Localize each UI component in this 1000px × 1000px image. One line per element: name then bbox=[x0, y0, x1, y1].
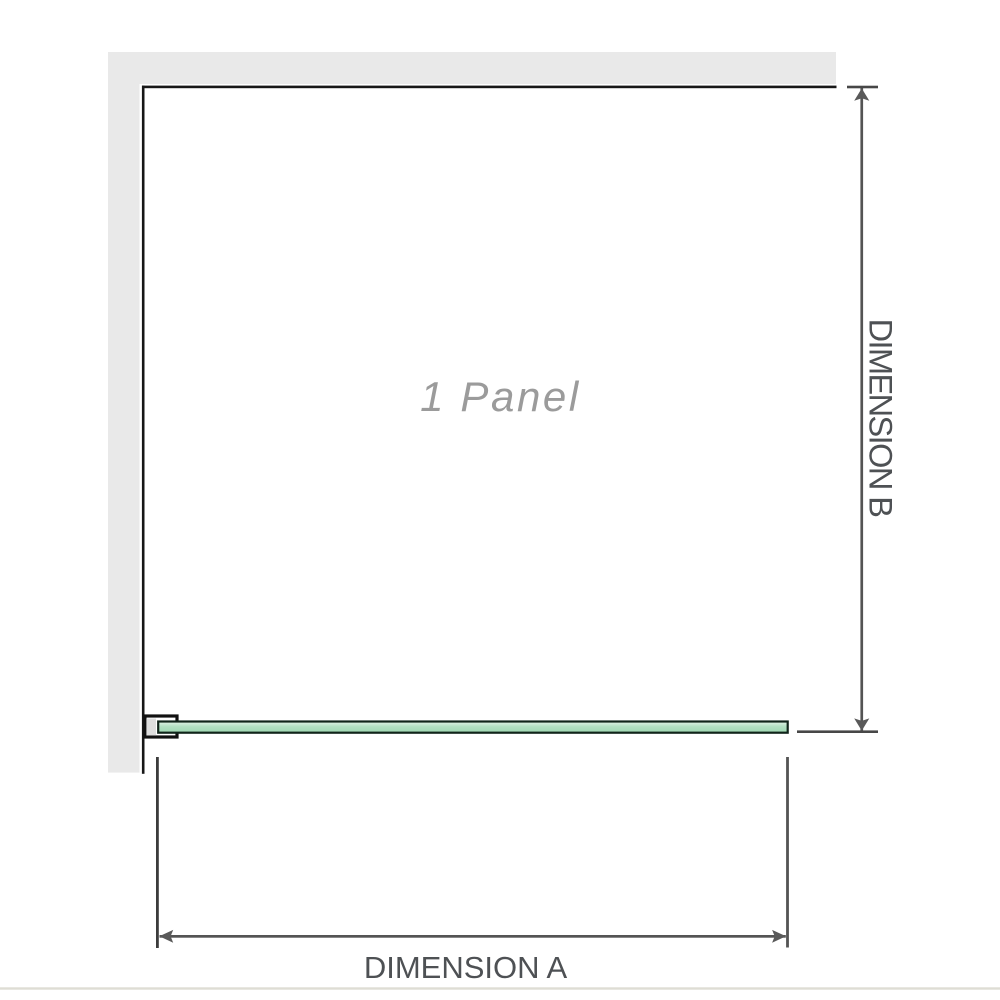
svg-text:1 Panel: 1 Panel bbox=[420, 373, 581, 420]
svg-text:DIMENSION B: DIMENSION B bbox=[863, 319, 899, 517]
svg-text:DIMENSION A: DIMENSION A bbox=[364, 950, 568, 985]
